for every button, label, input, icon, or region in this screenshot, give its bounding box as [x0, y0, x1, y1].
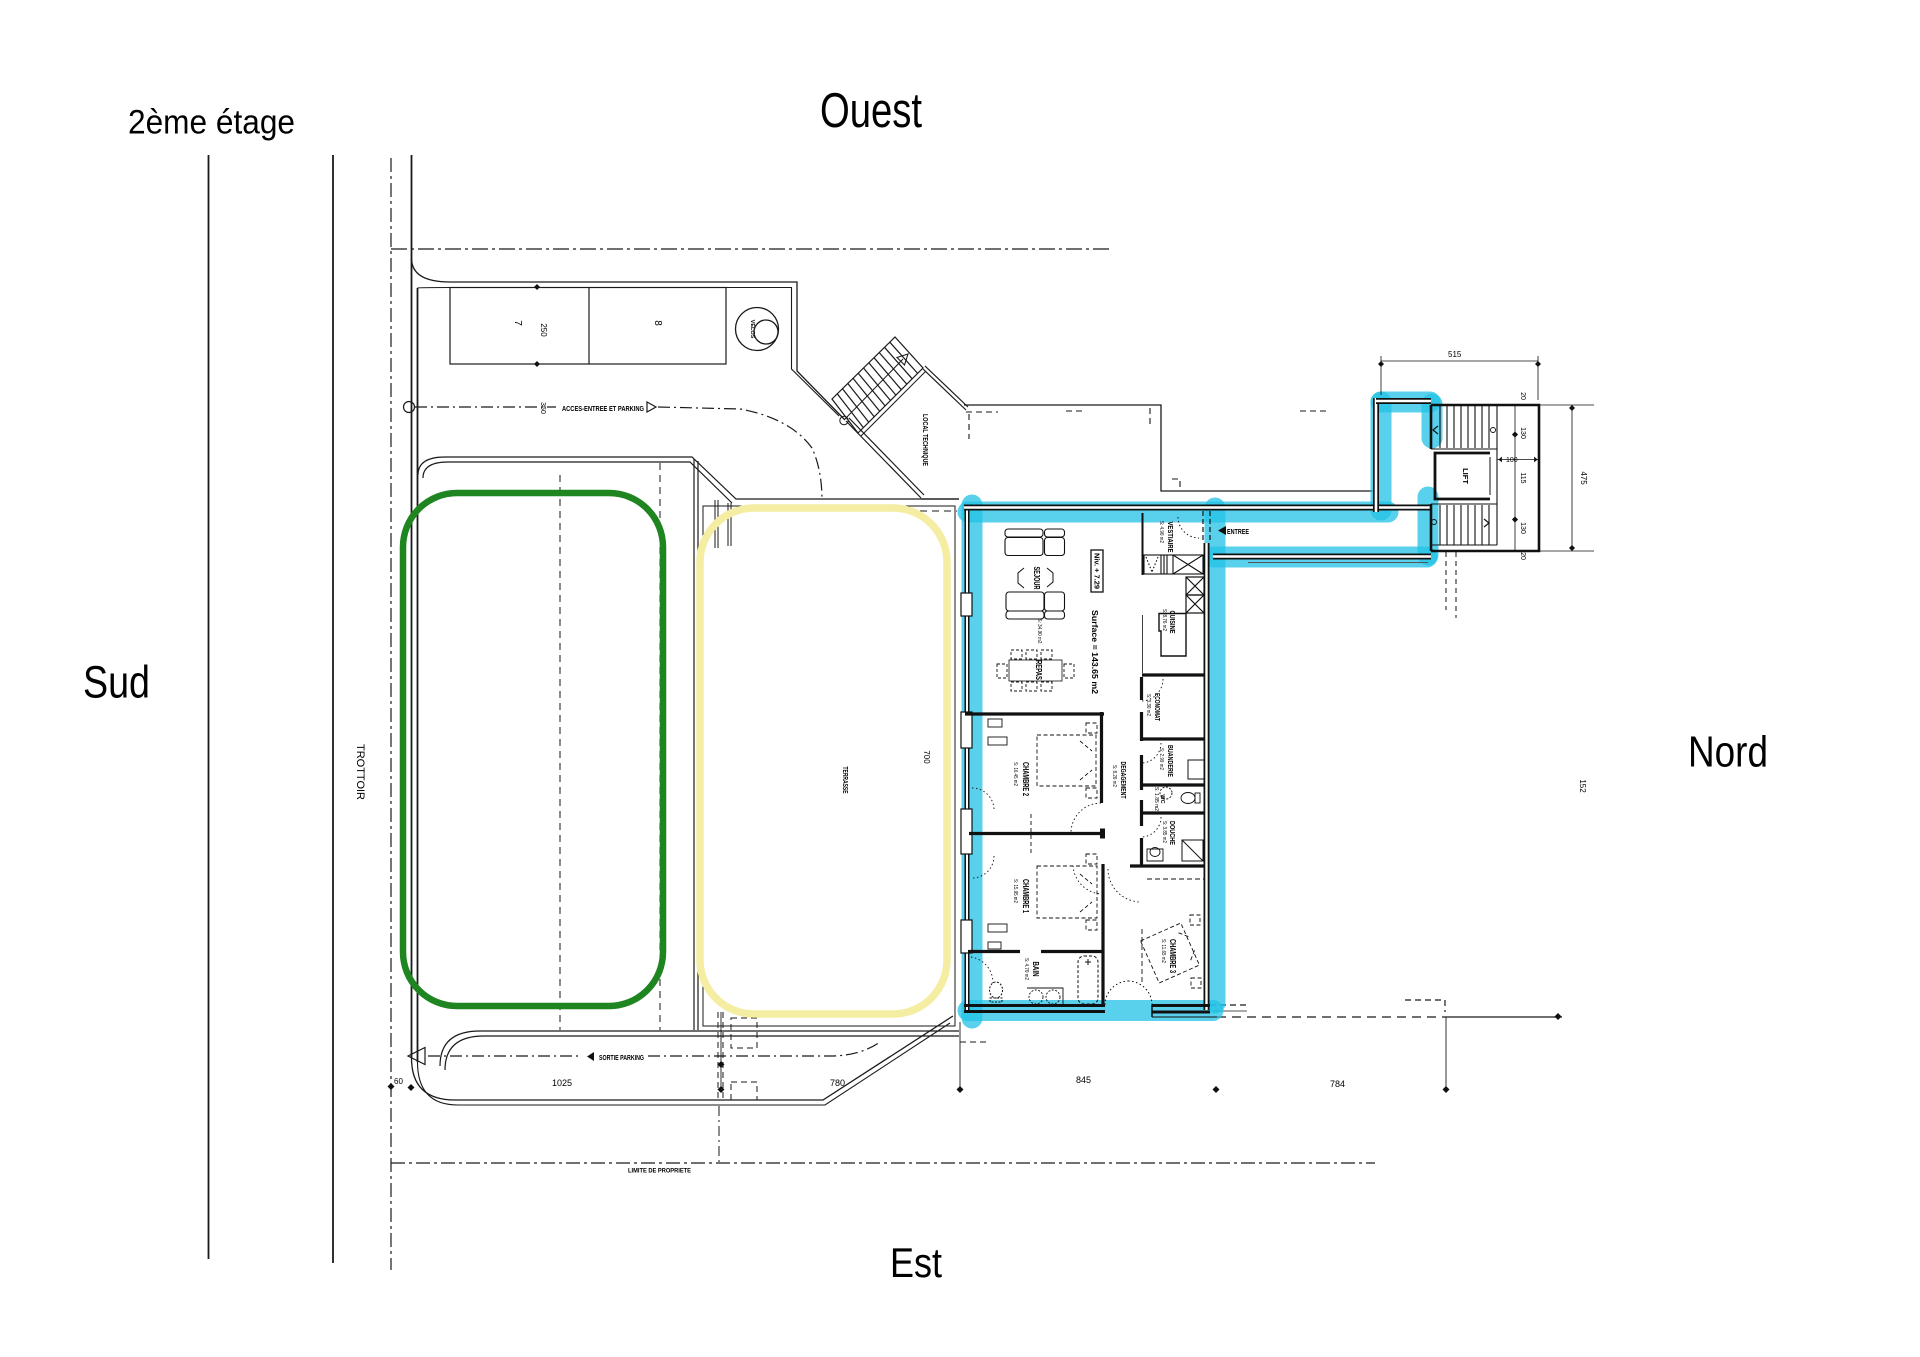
svg-text:S: 1.85 m2: S: 1.85 m2	[1153, 787, 1159, 811]
svg-text:LIFT: LIFT	[1461, 468, 1470, 484]
svg-text:ECONOMAT: ECONOMAT	[1153, 693, 1162, 721]
svg-text:100: 100	[1506, 457, 1518, 464]
svg-text:ACCES-ENTREE ET PARKING: ACCES-ENTREE ET PARKING	[562, 404, 644, 413]
svg-text:20: 20	[1519, 392, 1526, 400]
svg-text:BAIN: BAIN	[1031, 962, 1040, 977]
svg-text:8: 8	[652, 320, 663, 326]
svg-text:784: 784	[1330, 1079, 1345, 1089]
svg-text:BUANDERIE: BUANDERIE	[1166, 745, 1175, 777]
svg-text:350: 350	[539, 402, 546, 414]
svg-text:Niv. + 7.29: Niv. + 7.29	[1093, 553, 1102, 589]
svg-text:515: 515	[1448, 350, 1462, 359]
svg-text:250: 250	[539, 323, 548, 337]
svg-text:CHAMBRE 2: CHAMBRE 2	[1021, 762, 1030, 796]
svg-text:S: 8.76 m2: S: 8.76 m2	[1161, 609, 1167, 631]
svg-text:20: 20	[1519, 552, 1526, 560]
svg-text:VELOS: VELOS	[749, 320, 755, 339]
svg-text:TROTTOIR: TROTTOIR	[354, 744, 366, 800]
svg-text:S: 34.90 m2: S: 34.90 m2	[1036, 619, 1042, 644]
svg-text:CUISINE: CUISINE	[1168, 611, 1177, 634]
svg-text:700: 700	[922, 750, 931, 764]
svg-text:152: 152	[1578, 779, 1587, 793]
svg-text:VESTIAIRE: VESTIAIRE	[1166, 522, 1175, 553]
svg-text:S: 4.70 m2: S: 4.70 m2	[1023, 958, 1029, 980]
svg-text:130: 130	[1519, 522, 1526, 534]
svg-text:Est: Est	[890, 1239, 942, 1286]
svg-text:S: 3.85 m2: S: 3.85 m2	[1161, 821, 1167, 843]
svg-text:S: 11.65 m2: S: 11.65 m2	[1160, 939, 1166, 963]
svg-text:Ouest: Ouest	[820, 84, 922, 138]
svg-text:S: 4.90 m2: S: 4.90 m2	[1158, 521, 1164, 543]
svg-text:1025: 1025	[552, 1078, 572, 1088]
svg-text:REPAS: REPAS	[1034, 660, 1043, 680]
svg-text:DEGAGEMENT: DEGAGEMENT	[1119, 762, 1128, 799]
svg-text:S: 15.95 m2: S: 15.95 m2	[1012, 879, 1018, 903]
svg-text:ENTREE: ENTREE	[1227, 527, 1249, 536]
svg-text:LOCAL TECHNIQUE: LOCAL TECHNIQUE	[921, 414, 930, 466]
svg-text:SORTIE PARKING: SORTIE PARKING	[599, 1053, 644, 1062]
svg-text:LIMITE DE PROPRIETE: LIMITE DE PROPRIETE	[628, 1168, 691, 1175]
svg-text:780: 780	[830, 1078, 845, 1088]
svg-text:60: 60	[394, 1077, 403, 1086]
svg-text:7: 7	[512, 320, 523, 326]
svg-text:CHAMBRE 3: CHAMBRE 3	[1168, 939, 1177, 973]
svg-text:130: 130	[1519, 427, 1526, 439]
svg-text:Surface = 143.65 m2: Surface = 143.65 m2	[1090, 610, 1100, 694]
svg-text:S: 16.45 m2: S: 16.45 m2	[1012, 762, 1018, 786]
svg-text:DOUCHE: DOUCHE	[1168, 821, 1177, 845]
svg-text:115: 115	[1519, 472, 1526, 483]
svg-text:TERRASSE: TERRASSE	[841, 767, 850, 794]
svg-text:Sud: Sud	[83, 657, 150, 708]
svg-text:845: 845	[1076, 1075, 1091, 1085]
svg-text:S: 3.30 m2: S: 3.30 m2	[1145, 694, 1151, 716]
svg-text:CHAMBRE 1: CHAMBRE 1	[1021, 879, 1030, 913]
svg-text:2ème étage: 2ème étage	[128, 104, 295, 142]
svg-text:SEJOUR: SEJOUR	[1032, 567, 1041, 590]
svg-text:Nord: Nord	[1688, 729, 1768, 777]
svg-text:S: 8.26 m2: S: 8.26 m2	[1111, 765, 1117, 787]
svg-text:475: 475	[1579, 471, 1588, 485]
